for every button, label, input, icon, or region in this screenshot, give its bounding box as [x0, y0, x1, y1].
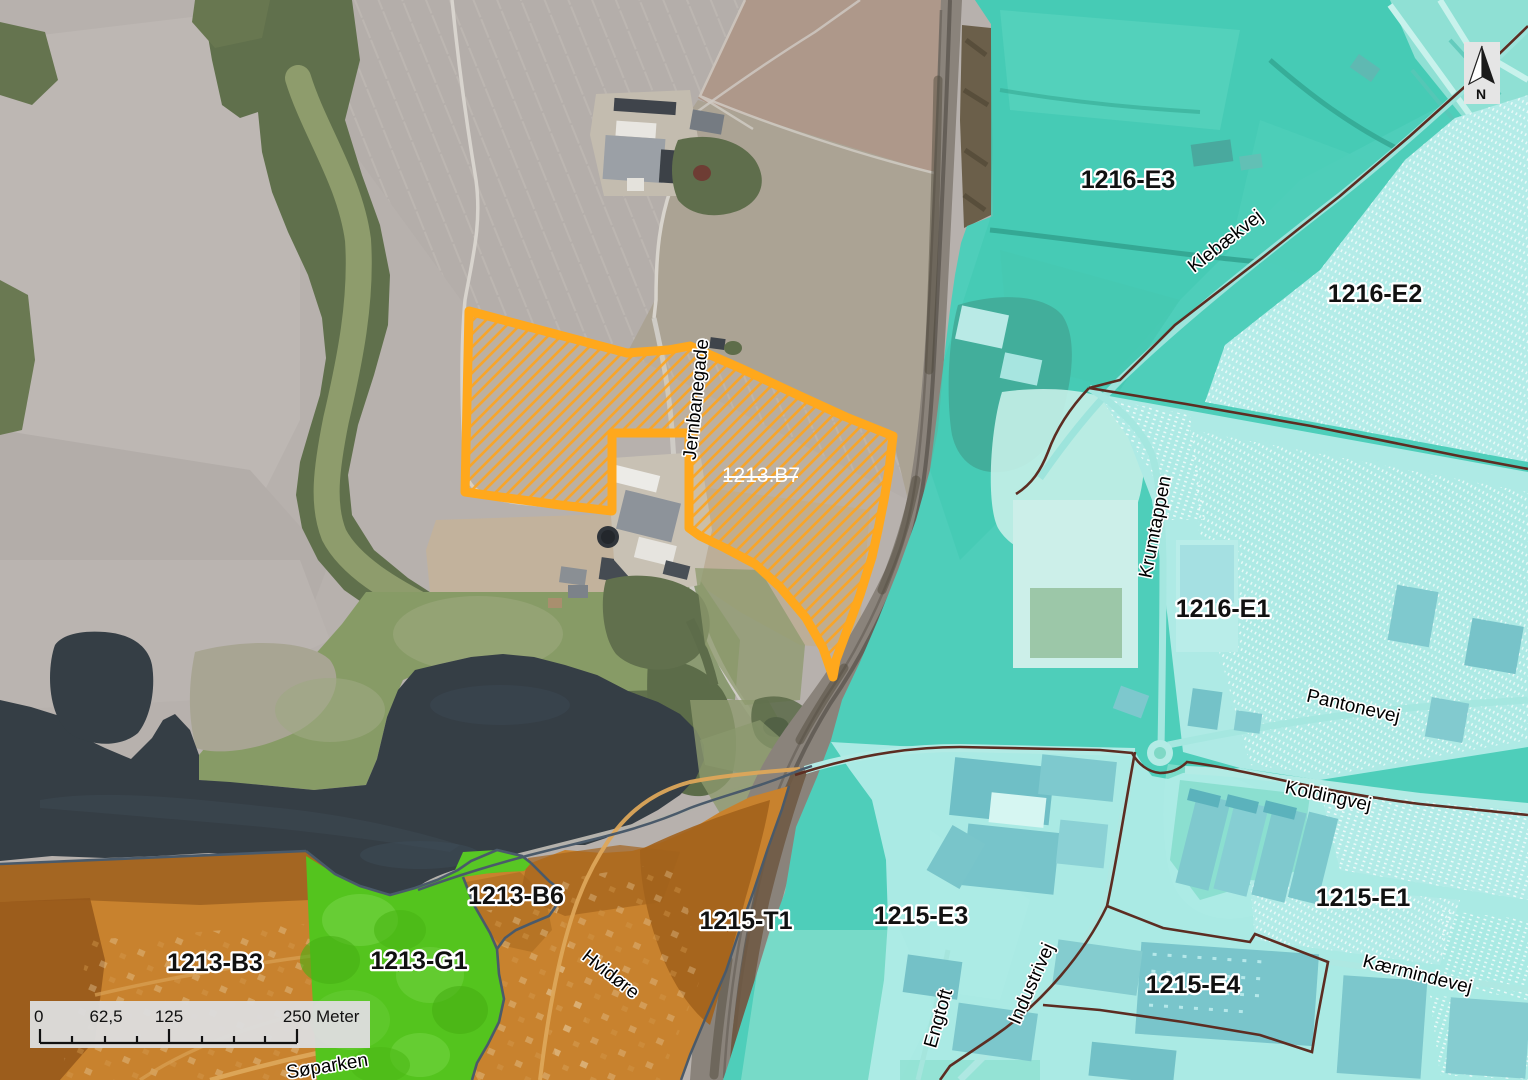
svg-text:62,5: 62,5: [89, 1007, 122, 1026]
svg-text:1213-B6: 1213-B6: [468, 882, 564, 910]
svg-text:250: 250: [283, 1007, 311, 1026]
svg-text:1213-G1: 1213-G1: [370, 947, 467, 975]
svg-text:1213-B3: 1213-B3: [167, 949, 263, 977]
svg-text:Meter: Meter: [316, 1007, 360, 1026]
svg-text:1213.B7: 1213.B7: [722, 464, 800, 487]
svg-text:1215-E3: 1215-E3: [874, 902, 969, 930]
svg-text:1215-E1: 1215-E1: [1316, 884, 1411, 912]
svg-text:0: 0: [34, 1007, 43, 1026]
svg-text:1216-E1: 1216-E1: [1176, 595, 1271, 623]
svg-text:1216-E3: 1216-E3: [1081, 166, 1176, 194]
svg-text:N: N: [1476, 86, 1486, 102]
svg-text:1215-T1: 1215-T1: [699, 907, 792, 935]
svg-text:1215-E4: 1215-E4: [1146, 971, 1241, 999]
svg-text:1216-E2: 1216-E2: [1328, 280, 1423, 308]
svg-text:125: 125: [155, 1007, 183, 1026]
